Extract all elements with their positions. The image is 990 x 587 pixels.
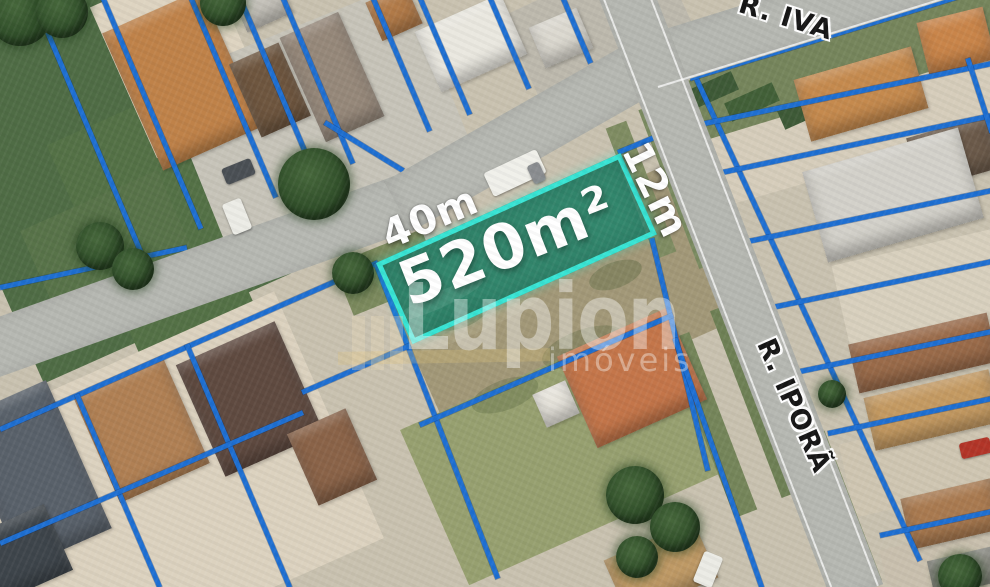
car [959,437,990,460]
car [221,158,256,185]
tree [278,148,350,220]
tree [818,380,846,408]
tree [938,554,982,587]
tree [616,536,658,578]
tree [332,252,374,294]
tree [112,248,154,290]
car [693,550,724,587]
tree [200,0,246,26]
tree [650,502,700,552]
car [222,197,253,235]
map-canvas[interactable]: 40m 12m 520m² R. IVA R. IPORÃ Lupion imó… [0,0,990,587]
